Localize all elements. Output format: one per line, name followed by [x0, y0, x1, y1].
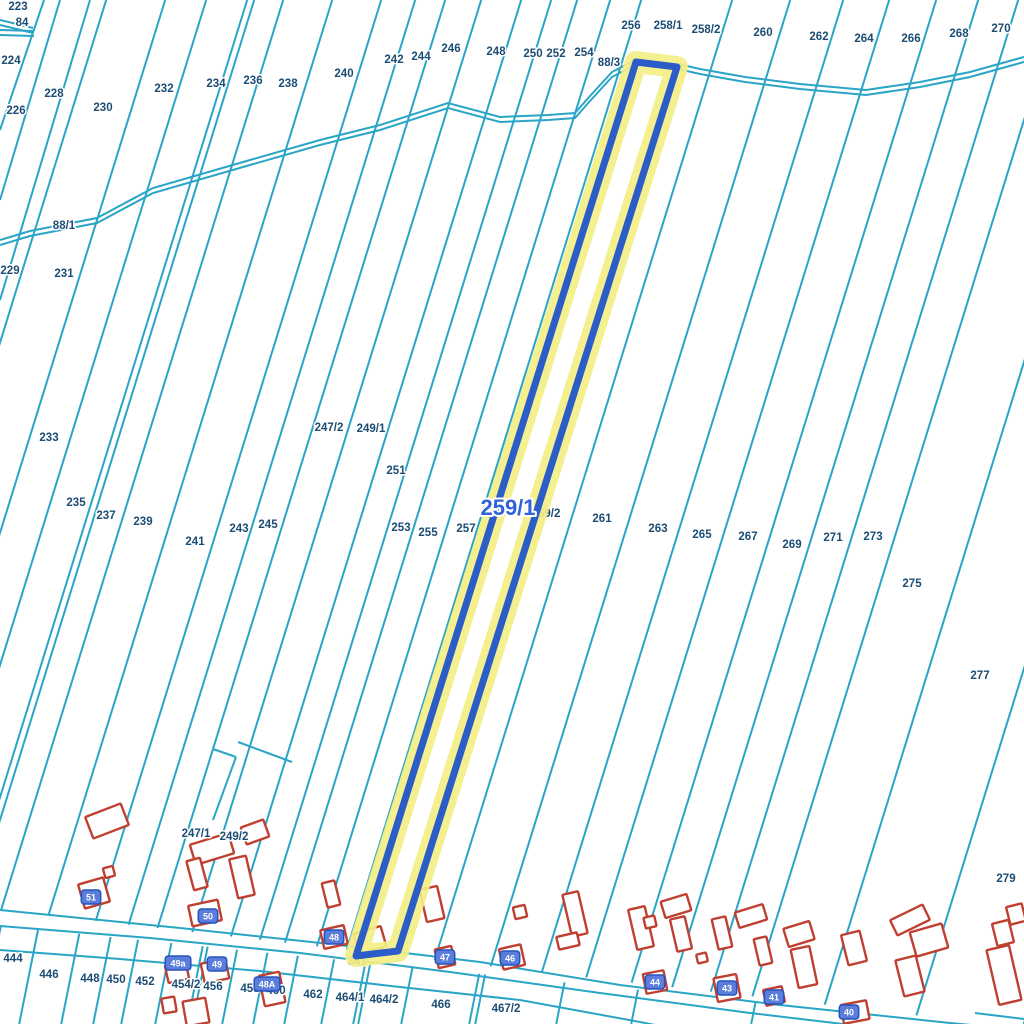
- parcel-label-456[interactable]: 456: [203, 981, 222, 993]
- parcel-label-446[interactable]: 446: [39, 969, 58, 981]
- road-frontage-lot-line: [401, 967, 412, 1024]
- address-plate-label: 50: [203, 912, 213, 922]
- building-outline: [183, 998, 210, 1024]
- stream-line: [678, 57, 1024, 90]
- parcel-label-262[interactable]: 262: [809, 31, 828, 43]
- parcel-label-84[interactable]: 84: [16, 17, 29, 29]
- stream-line: [678, 62, 1024, 95]
- parcel-label-263[interactable]: 263: [648, 523, 667, 535]
- address-plate-label: 47: [440, 953, 450, 963]
- parcel-label-268[interactable]: 268: [949, 28, 969, 40]
- building-outline: [841, 931, 867, 966]
- parcel-label-260[interactable]: 260: [753, 27, 772, 39]
- parcel-label-258-2[interactable]: 258/2: [692, 24, 721, 36]
- parcel-label-233[interactable]: 233: [39, 432, 58, 444]
- address-plate-label: 51: [86, 893, 96, 903]
- parcel-label-273[interactable]: 273: [863, 531, 882, 543]
- road-frontage-lot-line: [61, 934, 79, 1024]
- parcel-strip-line: [632, 0, 937, 983]
- parcel-label-88-1[interactable]: 88/1: [53, 220, 76, 232]
- parcel-label-248[interactable]: 248: [486, 46, 506, 58]
- parcel-label-239[interactable]: 239: [133, 516, 152, 528]
- parcel-label-454-2[interactable]: 454/2: [172, 979, 201, 991]
- parcel-label-261[interactable]: 261: [592, 513, 612, 525]
- parcel-label-249-1[interactable]: 249/1: [357, 423, 386, 435]
- building-outline: [895, 956, 924, 997]
- parcel-label-232[interactable]: 232: [154, 83, 173, 95]
- parcel-label-237[interactable]: 237: [96, 510, 115, 522]
- parcel-strip-line: [231, 0, 521, 936]
- parcel-label-226[interactable]: 226: [6, 105, 25, 117]
- parcel-strip-line: [48, 0, 332, 915]
- parcel-label-258-1[interactable]: 258/1: [654, 20, 683, 32]
- building-outline: [229, 856, 255, 899]
- parcel-label-235[interactable]: 235: [66, 497, 86, 509]
- building-outline: [783, 921, 814, 947]
- parcel-label-241[interactable]: 241: [185, 536, 205, 548]
- parcel-strip-line: [129, 0, 416, 925]
- parcel-strip-line: [0, 0, 206, 901]
- parcel-label-228[interactable]: 228: [44, 88, 64, 100]
- address-plate-label: 46: [505, 954, 515, 964]
- parcel-label-467-2[interactable]: 467/2: [492, 1003, 521, 1015]
- building-outline: [161, 996, 176, 1013]
- parcel-label-270[interactable]: 270: [991, 23, 1010, 35]
- parcel-label-249-2[interactable]: 249/2: [220, 831, 249, 843]
- stream-line: [0, 35, 34, 36]
- parcel-label-256[interactable]: 256: [621, 20, 640, 32]
- parcel-label-243[interactable]: 243: [229, 523, 248, 535]
- stream-line: [0, 61, 633, 240]
- parcel-label-464-2[interactable]: 464/2: [370, 994, 399, 1006]
- parcel-label-265[interactable]: 265: [692, 529, 712, 541]
- boundary-segment: [0, 0, 90, 300]
- cadastral-map-canvas[interactable]: 3412238422422622823023223423623824024224…: [0, 0, 1024, 1024]
- parcel-label-231[interactable]: 231: [54, 268, 74, 280]
- road-frontage-lot-line: [631, 990, 638, 1024]
- parcel-label-246[interactable]: 246: [441, 43, 460, 55]
- building-outline: [643, 915, 656, 928]
- parcel-strip-line: [0, 0, 106, 890]
- building-outline: [556, 932, 579, 949]
- parcel-label-462[interactable]: 462: [303, 989, 322, 1001]
- building-outline: [696, 952, 708, 963]
- parcel-label-229[interactable]: 229: [0, 265, 19, 277]
- parcel-label-223[interactable]: 223: [8, 1, 27, 13]
- parcel-label-245[interactable]: 245: [258, 519, 278, 531]
- building-outline: [670, 916, 692, 952]
- parcel-label-236[interactable]: 236: [243, 75, 262, 87]
- building-outline: [322, 880, 341, 907]
- parcel-label-275[interactable]: 275: [902, 578, 922, 590]
- address-plate-label: 49: [212, 960, 222, 970]
- parcel-label-267[interactable]: 267: [738, 531, 757, 543]
- parcel-label-244[interactable]: 244: [411, 51, 431, 63]
- parcel-strip-line: [711, 0, 1018, 992]
- parcel-strip-line: [672, 0, 978, 987]
- parcel-label-277[interactable]: 277: [970, 670, 989, 682]
- parcel-label-444[interactable]: 444: [3, 953, 23, 965]
- parcel-label-240[interactable]: 240: [334, 68, 353, 80]
- parcel-label-238[interactable]: 238: [278, 78, 298, 90]
- parcel-label-466[interactable]: 466: [431, 999, 450, 1011]
- parcel-label-247-2[interactable]: 247/2: [315, 422, 344, 434]
- parcel-strip-line: [0, 0, 165, 897]
- stream-line: [0, 30, 34, 31]
- parcel-label-250[interactable]: 250: [523, 48, 542, 60]
- parcel-label-257[interactable]: 257: [456, 523, 475, 535]
- road-frontage-lot-line: [0, 926, 1, 1024]
- parcel-strip-line: [285, 0, 577, 943]
- parcel-label-266[interactable]: 266: [901, 33, 920, 45]
- parcel-strip-line: [542, 0, 843, 972]
- address-plate-label: 43: [722, 984, 732, 994]
- parcel-label-254[interactable]: 254: [574, 47, 594, 59]
- parcel-label-269[interactable]: 269: [782, 539, 801, 551]
- parcel-label-448[interactable]: 448: [80, 973, 100, 985]
- parcel-label-464-1[interactable]: 464/1: [336, 992, 365, 1004]
- map-layers: 3412238422422622823023223423623824024224…: [0, 0, 1024, 1024]
- parcel-strip-line: [317, 0, 610, 946]
- parcel-label-452[interactable]: 452: [135, 976, 154, 988]
- parcel-label-242[interactable]: 242: [384, 54, 403, 66]
- parcel-strip-line: [435, 0, 733, 960]
- parcel-label-271[interactable]: 271: [823, 532, 843, 544]
- boundary-segment: [213, 749, 236, 757]
- road-frontage-lot-line: [284, 956, 298, 1024]
- parcel-label-252[interactable]: 252: [546, 48, 565, 60]
- parcel-label-224[interactable]: 224: [1, 55, 21, 67]
- address-plate-label: 48: [329, 933, 339, 943]
- building-outline: [735, 904, 767, 928]
- parcel-label-253[interactable]: 253: [391, 522, 410, 534]
- address-plate-label: 49a: [170, 959, 186, 969]
- building-outline: [661, 894, 692, 918]
- parcel-label-450[interactable]: 450: [106, 974, 125, 986]
- parcel-label-255[interactable]: 255: [418, 527, 438, 539]
- building-outline: [986, 945, 1021, 1005]
- address-plate-label: 48A: [259, 980, 276, 990]
- road-frontage-lot-line: [469, 974, 479, 1024]
- parcel-strip-line: [0, 0, 254, 907]
- building-outline: [562, 891, 587, 936]
- parcel-label-230[interactable]: 230: [93, 102, 112, 114]
- building-outline: [513, 905, 527, 919]
- building-outline: [791, 946, 818, 988]
- boundary-segment: [975, 1013, 1024, 1019]
- parcel-label-247-1[interactable]: 247/1: [182, 828, 211, 840]
- road-frontage-lot-line: [321, 959, 334, 1024]
- road-frontage-lot-line: [19, 930, 38, 1024]
- parcel-label-264[interactable]: 264: [854, 33, 874, 45]
- building-outline: [910, 923, 949, 956]
- address-plate-label: 44: [650, 978, 660, 988]
- building-outline: [103, 866, 115, 878]
- building-outline: [1006, 903, 1024, 924]
- boundary-segment: [213, 757, 236, 820]
- parcel-label-234[interactable]: 234: [206, 78, 226, 90]
- parcel-label-251[interactable]: 251: [386, 465, 406, 477]
- building-outline: [712, 916, 733, 949]
- parcel-strip-line: [752, 0, 1024, 996]
- selected-parcel-label[interactable]: 259/1: [480, 495, 535, 520]
- address-plate-label: 41: [769, 993, 779, 1003]
- parcel-strip-line: [825, 0, 1024, 1005]
- address-plate-label: 40: [844, 1008, 854, 1018]
- parcel-strip-line: [586, 0, 889, 977]
- parcel-label-88-3[interactable]: 88/3: [598, 57, 620, 69]
- parcel-label-279[interactable]: 279: [996, 873, 1015, 885]
